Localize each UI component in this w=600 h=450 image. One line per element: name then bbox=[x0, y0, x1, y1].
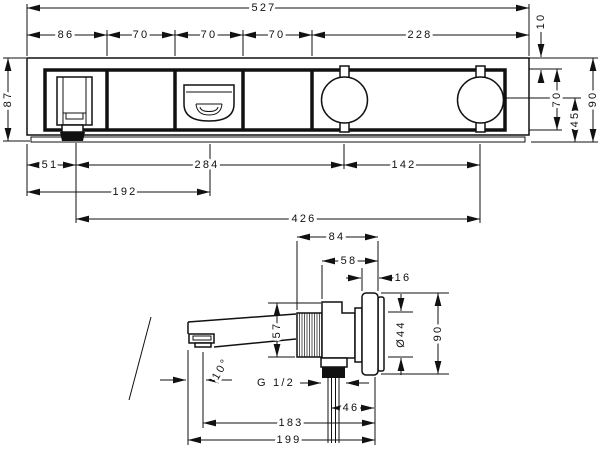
dim-spout-to-handle2: 426 bbox=[292, 213, 317, 225]
dim-overall-height: 87 bbox=[2, 91, 14, 108]
dim-seg-spout: 86 bbox=[58, 29, 75, 41]
dim-outlet-to-wall: 183 bbox=[279, 417, 304, 429]
angle-reference-line bbox=[129, 317, 151, 400]
spout-body bbox=[57, 77, 92, 125]
dim-spout-offset: 51 bbox=[42, 159, 59, 171]
dim-spout-to-handle1: 284 bbox=[195, 159, 220, 171]
dim-seg-4: 70 bbox=[269, 29, 286, 41]
dim-depth-overall: 84 bbox=[329, 231, 346, 243]
diverter-outline bbox=[184, 85, 234, 121]
plate-base-strip bbox=[31, 137, 525, 142]
handle-1 bbox=[322, 66, 368, 132]
dim-thread-span: 46 bbox=[343, 402, 360, 414]
handle-2-top-tab bbox=[476, 66, 485, 78]
dim-thread-label: G 1/2 bbox=[257, 377, 295, 389]
trim-plate bbox=[27, 58, 529, 142]
flange-back-plate bbox=[378, 297, 384, 371]
front-view: 527 86 70 70 70 228 87 10 70 45 90 51 28… bbox=[2, 2, 599, 225]
thread-striations bbox=[300, 313, 320, 357]
dim-flange-depth: 16 bbox=[395, 272, 412, 284]
plate-inner-frame bbox=[45, 70, 505, 130]
spout-lip bbox=[66, 113, 83, 119]
side-view: 84 58 16 57 Ø44 90 10° G 1/2 46 183 199 bbox=[129, 231, 449, 446]
dim-seg-3: 70 bbox=[201, 29, 218, 41]
dim-face-height: 70 bbox=[551, 91, 563, 108]
technical-drawing-page: 527 86 70 70 70 228 87 10 70 45 90 51 28… bbox=[0, 0, 600, 450]
wall-flange bbox=[362, 293, 378, 375]
plate-dividers bbox=[107, 69, 312, 132]
dim-pipe-diameter: Ø44 bbox=[395, 320, 407, 347]
dim-top-inset: 10 bbox=[535, 13, 547, 30]
collar-ring bbox=[355, 308, 362, 362]
diverter-bowl bbox=[196, 104, 222, 115]
dim-overall-width: 527 bbox=[252, 2, 277, 14]
dim-depth-body: 58 bbox=[341, 255, 358, 267]
dim-body-height: 57 bbox=[271, 322, 283, 339]
valve-body bbox=[322, 302, 355, 358]
dim-seg-2: 70 bbox=[133, 29, 150, 41]
supply-pipes bbox=[328, 378, 339, 443]
dim-tip-to-wall: 199 bbox=[277, 434, 302, 446]
wall-mount-body bbox=[297, 293, 384, 443]
spout-nozzle bbox=[60, 132, 85, 141]
dim-flange-height: 90 bbox=[432, 325, 444, 342]
dim-spout-angle: 10° bbox=[210, 356, 232, 382]
handle-1-top-tab bbox=[340, 66, 349, 78]
diverter-symbol bbox=[184, 85, 234, 121]
technical-drawing: 527 86 70 70 70 228 87 10 70 45 90 51 28… bbox=[0, 0, 600, 450]
dim-edge-to-diverter: 192 bbox=[113, 186, 138, 198]
spout-neck bbox=[62, 125, 83, 132]
dim-handle-spacing: 142 bbox=[392, 159, 417, 171]
handle-1-knob bbox=[322, 77, 368, 123]
thread-nipple bbox=[322, 367, 345, 378]
handle-2-knob bbox=[458, 77, 504, 123]
dim-center-to-bottom: 45 bbox=[569, 111, 581, 128]
handle-2 bbox=[458, 66, 504, 132]
spout-aerator bbox=[195, 343, 211, 347]
dim-seg-handles: 228 bbox=[408, 29, 433, 41]
dim-side-height: 90 bbox=[587, 91, 599, 108]
valve-bottom bbox=[321, 358, 347, 367]
